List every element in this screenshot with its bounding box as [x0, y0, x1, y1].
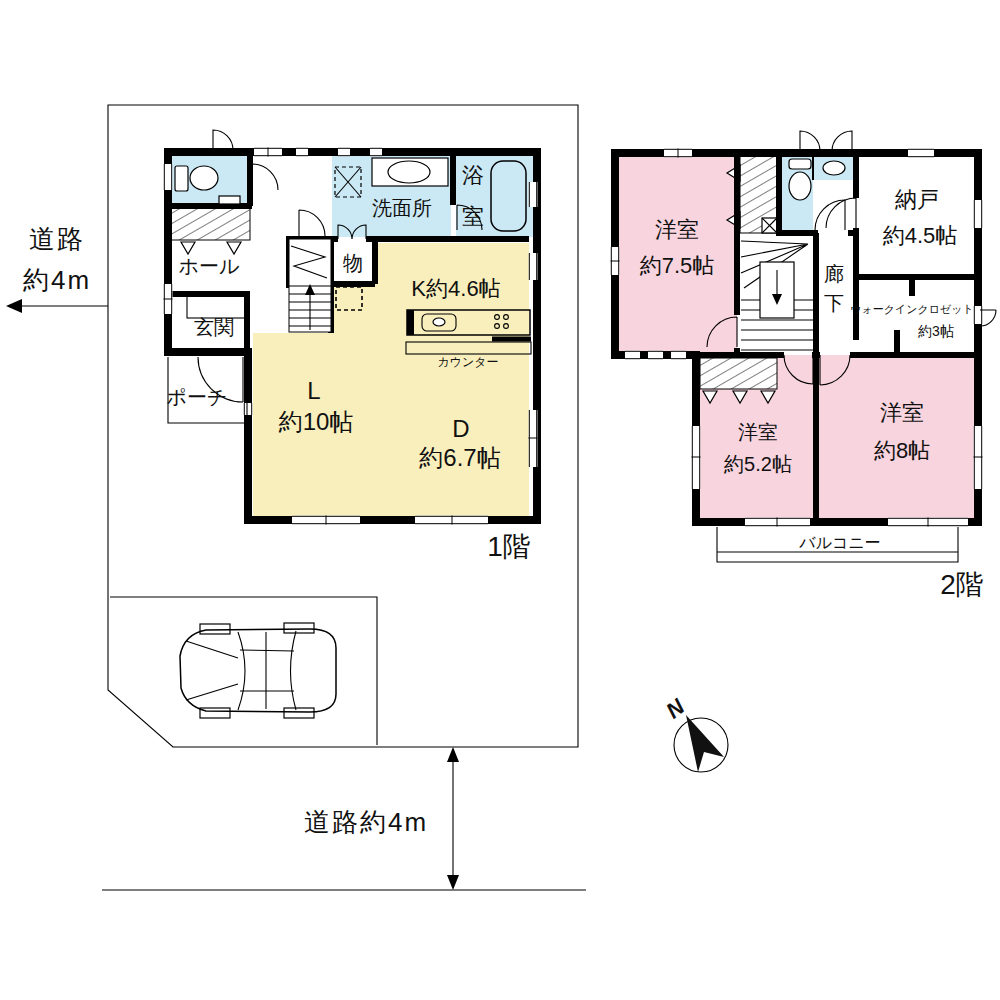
porch: ポーチ: [167, 357, 247, 423]
floorplan-page: 道路 約4m 道路約4m N: [0, 0, 1000, 1000]
floor1-plan: ポーチ: [164, 130, 538, 562]
floorplan-drawing: 道路 約4m 道路約4m N: [0, 0, 1000, 1000]
bath-label-2: 室: [462, 204, 484, 229]
road-bottom: 道路約4m: [102, 747, 586, 890]
pipe-shaft: [762, 218, 777, 233]
balcony-label: バルコニー: [798, 534, 881, 551]
dining-label-1: D: [452, 415, 469, 442]
hall-closet: [171, 208, 250, 254]
storeroom-label-1: 納戸: [895, 187, 939, 212]
bedroom1-label-2: 約7.5帖: [640, 253, 715, 278]
road-bottom-label: 道路約4m: [304, 807, 428, 837]
bedroom2-closet: [700, 358, 777, 403]
parking-bay: [110, 597, 377, 745]
road-left-label-1: 道路: [29, 224, 85, 254]
bedroom3-label-1: 洋室: [880, 400, 924, 425]
vanity-sink: [372, 158, 448, 186]
dining-label-2: 約6.7帖: [418, 444, 500, 471]
wic-label-2: 約3帖: [918, 323, 954, 339]
bedroom3-label-2: 約8帖: [874, 438, 930, 463]
road-left: 道路 約4m: [6, 224, 108, 313]
stairs-1f: [289, 239, 331, 332]
arrow-down-icon: [447, 875, 459, 890]
entrance-label: 玄関: [194, 316, 234, 338]
kitchen-label: K約4.6帖: [411, 276, 500, 301]
compass-north-label: N: [661, 693, 690, 723]
bath-label-1: 浴: [462, 163, 484, 188]
arrow-left-icon: [6, 299, 22, 313]
bedroom2-label-1: 洋室: [738, 421, 778, 443]
arrow-up-icon: [447, 747, 459, 762]
car: [180, 623, 336, 718]
washroom-label: 洗面所: [372, 197, 432, 219]
counter-label: カウンター: [437, 355, 498, 369]
compass-needle-icon: [686, 715, 724, 772]
floor2-plan: バルコニー 洋室 約7.5帖 廊 下 納戸 約4.5帖 ウォークインクロゼット …: [611, 131, 997, 600]
entrance-step: [187, 296, 248, 318]
compass: N: [661, 693, 728, 772]
storage-label: 物: [343, 252, 363, 274]
porch-label: ポーチ: [167, 386, 228, 408]
wic-label-1: ウォークインクロゼット: [850, 303, 974, 315]
stairs-2f: [741, 241, 813, 350]
bedroom1-label-1: 洋室: [655, 217, 699, 242]
storeroom-label-2: 約4.5帖: [883, 223, 958, 248]
balcony: バルコニー: [717, 527, 958, 562]
hall-label: ホール: [179, 255, 240, 277]
road-left-label-2: 約4m: [23, 265, 91, 295]
corridor-label-1: 廊: [824, 263, 844, 285]
floor1-title: 1階: [487, 531, 531, 562]
living-label-2: 約10帖: [278, 408, 354, 435]
corridor-label-2: 下: [824, 292, 844, 314]
living-label-1: L: [307, 377, 320, 404]
floor2-title: 2階: [940, 569, 984, 600]
bedroom2-label-2: 約5.2帖: [723, 453, 792, 475]
